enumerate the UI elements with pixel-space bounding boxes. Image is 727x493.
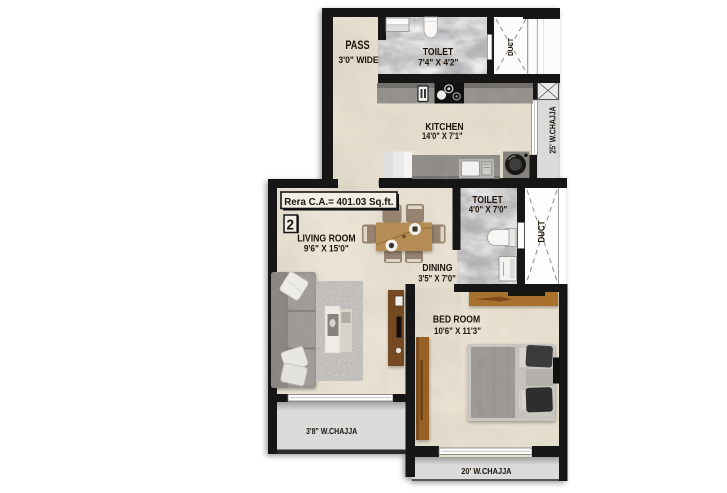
svg-text:LIVING ROOM: LIVING ROOM — [297, 233, 356, 244]
svg-text:PASS: PASS — [345, 40, 369, 52]
svg-text:DUCT: DUCT — [536, 220, 547, 243]
svg-text:DINING: DINING — [422, 262, 452, 273]
svg-text:10'6" X 11'3": 10'6" X 11'3" — [434, 326, 481, 337]
svg-text:4'0" X 7'0": 4'0" X 7'0" — [469, 204, 508, 215]
svg-text:BED ROOM: BED ROOM — [433, 314, 480, 325]
svg-text:DUCT: DUCT — [508, 37, 516, 55]
svg-text:2: 2 — [287, 217, 295, 234]
svg-text:3'0" WIDE: 3'0" WIDE — [338, 55, 378, 65]
svg-text:7'4" X 4'2": 7'4" X 4'2" — [418, 57, 458, 68]
svg-text:3'8" W.CHAJJA: 3'8" W.CHAJJA — [306, 426, 358, 436]
svg-text:3'5" X 7'0": 3'5" X 7'0" — [418, 273, 456, 284]
svg-text:14'0" X 7'1": 14'0" X 7'1" — [422, 131, 463, 141]
svg-text:25' W.CHAJJA: 25' W.CHAJJA — [548, 106, 558, 154]
svg-text:20' W.CHAJJA: 20' W.CHAJJA — [461, 466, 511, 476]
svg-text:Rera C.A.= 401.03 Sq.ft.: Rera C.A.= 401.03 Sq.ft. — [284, 197, 393, 208]
svg-text:9'6" X 15'0": 9'6" X 15'0" — [304, 243, 349, 254]
svg-text:TOILET: TOILET — [423, 46, 454, 57]
